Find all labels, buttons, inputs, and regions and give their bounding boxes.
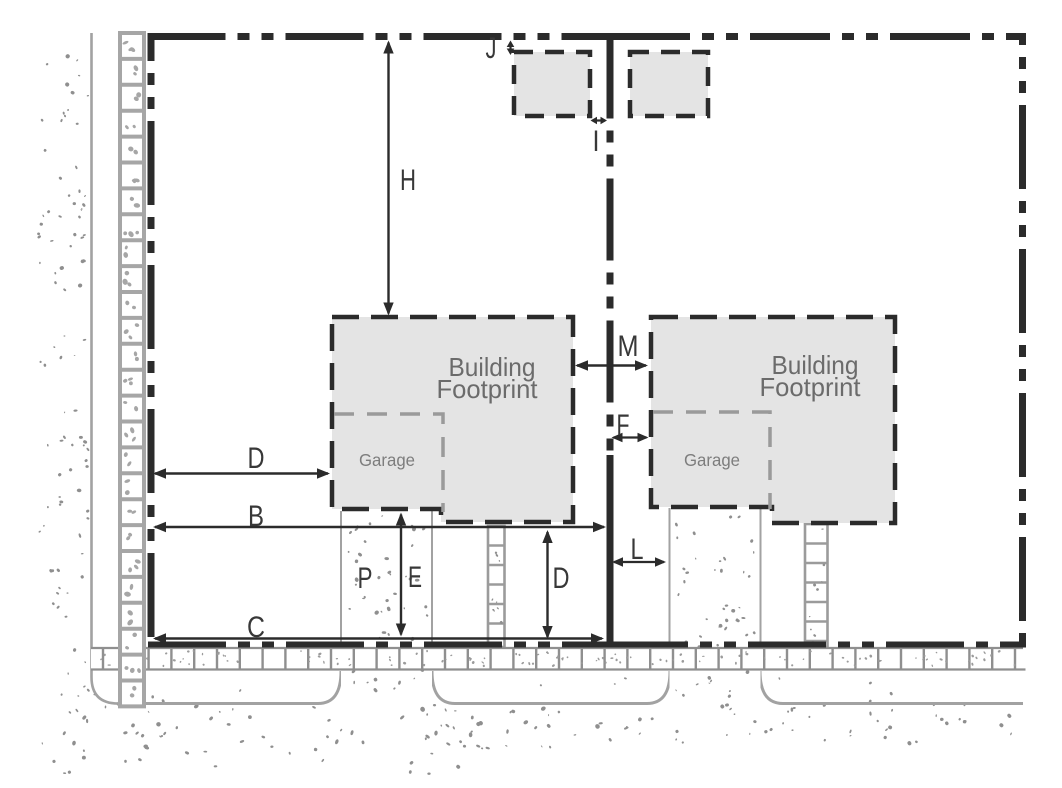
svg-text:Garage: Garage xyxy=(359,450,415,470)
svg-text:D: D xyxy=(553,562,570,595)
svg-text:Garage: Garage xyxy=(684,450,740,470)
svg-text:L: L xyxy=(631,533,644,566)
svg-text:P: P xyxy=(358,562,373,595)
svg-text:C: C xyxy=(247,611,265,644)
svg-text:M: M xyxy=(618,330,639,363)
svg-text:E: E xyxy=(408,561,422,594)
svg-text:Footprint: Footprint xyxy=(437,374,539,404)
svg-text:Footprint: Footprint xyxy=(760,372,862,402)
svg-text:H: H xyxy=(400,164,416,197)
svg-text:B: B xyxy=(248,500,264,533)
svg-text:J: J xyxy=(486,32,497,65)
svg-text:F: F xyxy=(617,409,630,442)
svg-text:D: D xyxy=(248,442,265,475)
svg-text:I: I xyxy=(593,125,600,158)
